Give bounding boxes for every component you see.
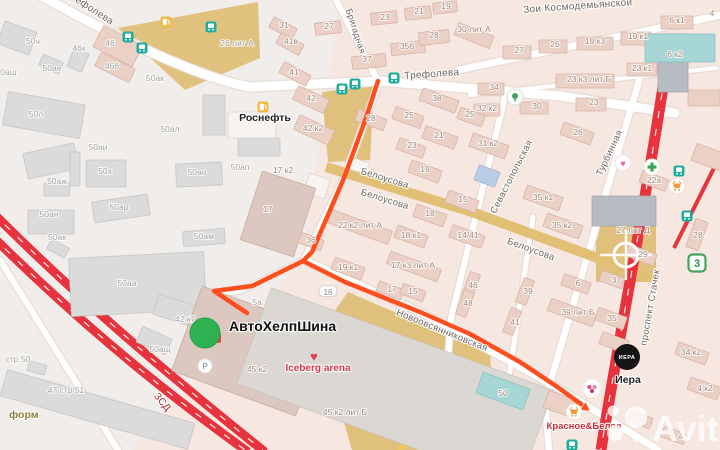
building-label: 50ан	[40, 209, 59, 219]
building-label: 15	[408, 286, 418, 296]
building-label: 14/41	[457, 230, 479, 240]
poi-cluster-icon[interactable]	[583, 379, 601, 397]
map[interactable]: ♥P3ИЕРА♥50ч46к4646б50аш50ае50ак50ал50л26…	[0, 0, 720, 450]
building-label: 42 к2	[303, 123, 324, 133]
building-label: 35 к1	[533, 192, 554, 202]
building-label: 17	[387, 284, 397, 294]
transit-route-badge[interactable]: 3	[689, 255, 706, 272]
building-label: 26	[550, 39, 560, 49]
poi-label[interactable]: Иера	[615, 374, 641, 386]
building-label: 35	[607, 313, 617, 323]
building-label: 50ак	[146, 73, 164, 83]
building-label: 50х	[98, 166, 112, 176]
building-label: 27	[514, 45, 524, 55]
building-label: 15	[458, 194, 468, 204]
iceberg-arena-logo[interactable]: ♥	[310, 349, 318, 364]
building-label: 30 лит А	[457, 24, 491, 34]
building-label: 27 лит Д	[616, 225, 650, 235]
building-label: 50ао	[188, 167, 207, 177]
tram-stop-icon[interactable]	[350, 79, 361, 90]
building-label: 4 к2	[697, 383, 713, 393]
building-label: 46	[105, 38, 115, 48]
building-label: 35 к2	[552, 220, 573, 230]
building-label: 50аш	[0, 67, 17, 77]
building-label: 50ае	[43, 63, 62, 73]
building-label: 17 к3 лит А	[391, 260, 436, 270]
building-label: 3	[612, 275, 617, 285]
svg-text:16: 16	[324, 288, 333, 297]
building-label: 48	[463, 298, 473, 308]
building-label: 39	[523, 286, 533, 296]
pharmacy-poi-icon[interactable]	[644, 159, 660, 175]
building-label: 19 к1	[628, 31, 649, 41]
building-label: 46к	[72, 43, 85, 53]
poi-label[interactable]: АвтоХелпШина	[229, 318, 336, 334]
tram-stop-icon[interactable]	[389, 73, 400, 84]
building-label: 36	[306, 235, 316, 245]
tram-stop-icon[interactable]	[682, 211, 693, 222]
store-basket-poi-icon[interactable]	[566, 404, 582, 420]
building-label: 34 к2	[681, 347, 702, 357]
building-label: 6	[576, 278, 581, 288]
building-label: 28	[693, 230, 703, 240]
svg-text:3: 3	[694, 258, 700, 270]
tram-stop-icon[interactable]	[137, 43, 148, 54]
building-label: 25	[404, 110, 414, 120]
parking-icon[interactable]: P	[198, 359, 212, 373]
svg-text:♥: ♥	[310, 349, 318, 364]
building-label: 50аа	[118, 278, 137, 288]
building-label: 39 лит Б	[561, 307, 595, 317]
building-label: 23 к1	[632, 63, 653, 73]
building-label: 31	[279, 20, 289, 30]
building-label: 41	[510, 317, 520, 327]
building-label: 50аи	[89, 142, 108, 152]
building-label: 50ал	[160, 124, 179, 134]
building	[238, 138, 280, 156]
building-label: 38	[432, 93, 442, 103]
building-label: 17	[263, 204, 273, 214]
building-label: 50аж	[47, 176, 67, 186]
building-label: 6 к2	[667, 49, 683, 59]
building-label: 28	[429, 30, 439, 40]
building-label: 47 стр 51	[48, 385, 85, 395]
building-label: 50ак	[48, 232, 66, 242]
fuel-station-icon[interactable]	[161, 17, 172, 28]
building-label: 29	[638, 249, 648, 259]
building-label: 41в	[284, 36, 298, 46]
building-label: 42	[306, 93, 316, 103]
building-label: 30	[532, 101, 542, 111]
shop-cart-poi-icon[interactable]	[669, 178, 685, 194]
tram-stop-icon[interactable]	[337, 84, 348, 95]
building-label: 17 к2	[273, 165, 294, 175]
building-label: 4	[710, 8, 715, 18]
building-label: 23	[589, 97, 599, 107]
building-label: 26	[573, 127, 583, 137]
building-label: 27	[324, 21, 334, 31]
building-label: 50ч	[26, 36, 40, 46]
svg-text:♥: ♥	[620, 158, 625, 168]
building-label: 37	[362, 54, 372, 64]
building	[203, 95, 225, 135]
building-label: 50ап	[231, 162, 250, 172]
building-label: 23	[407, 140, 417, 150]
tram-stop-icon[interactable]	[123, 32, 134, 43]
poi-label[interactable]: Роснефть	[239, 112, 291, 124]
building-label: 45 к2 лит Б	[323, 407, 368, 417]
building-label: 31 к2	[478, 138, 499, 148]
avito-watermark-text: Avito	[652, 408, 720, 449]
park-icon[interactable]	[507, 89, 523, 105]
building-label: 50ар	[110, 202, 129, 212]
medical-poi-icon[interactable]: ♥	[615, 155, 631, 171]
building-label: 42 к7	[175, 314, 196, 324]
building-label: 18	[425, 208, 435, 218]
building-label: 23	[380, 12, 390, 22]
svg-text:ИЕРА: ИЕРА	[619, 355, 636, 361]
building	[592, 196, 656, 226]
building-label: 18 к1	[401, 230, 422, 240]
building-label: 21	[414, 6, 424, 16]
building-label: 26 лит А	[220, 38, 254, 48]
building-label: 32 к2	[477, 103, 498, 113]
building-label: 19	[420, 164, 430, 174]
building-label: 19 к3	[585, 36, 606, 46]
building-label: 50ащ	[149, 344, 170, 354]
iera-logo[interactable]: ИЕРА	[614, 344, 640, 370]
building-label: 23 к3 лит Б	[567, 74, 612, 84]
building-label: 19 к1	[338, 262, 359, 272]
map-canvas[interactable]: ♥P3ИЕРА♥50ч46к4646б50аш50ае50ак50ал50л26…	[0, 0, 720, 450]
tram-stop-icon[interactable]	[567, 440, 578, 450]
building-label: 35б	[400, 41, 414, 51]
building-label: 28	[366, 113, 376, 123]
building-label: стр 50	[6, 354, 31, 364]
building-label: 25	[465, 109, 475, 119]
building-label: 50	[498, 388, 508, 398]
tram-stop-icon[interactable]	[674, 166, 685, 177]
building-label: 34	[489, 82, 499, 92]
building-label: 21	[434, 130, 444, 140]
building	[70, 152, 80, 186]
building-label: 46б	[105, 61, 119, 71]
building	[688, 90, 720, 106]
building-label: 41	[289, 67, 299, 77]
building-label: 6 к1	[669, 15, 685, 25]
building-label: 45 к2	[247, 364, 268, 374]
building-label: 22а	[647, 175, 661, 185]
building-label: 50ам	[194, 231, 214, 241]
road-number-plate: 16	[319, 286, 337, 298]
poi-label[interactable]: Iceberg arena	[285, 363, 350, 374]
fuel-station-icon[interactable]	[258, 102, 269, 113]
building-label: 5а	[252, 297, 262, 307]
poi-label[interactable]: форм	[9, 409, 39, 421]
tram-stop-icon[interactable]	[206, 22, 217, 33]
building-label: 19	[441, 1, 451, 11]
building-label: 22 к2 лит А	[338, 220, 383, 230]
svg-text:P: P	[202, 362, 208, 371]
building-label: 46	[468, 280, 478, 290]
building-label: 50л	[29, 109, 43, 119]
